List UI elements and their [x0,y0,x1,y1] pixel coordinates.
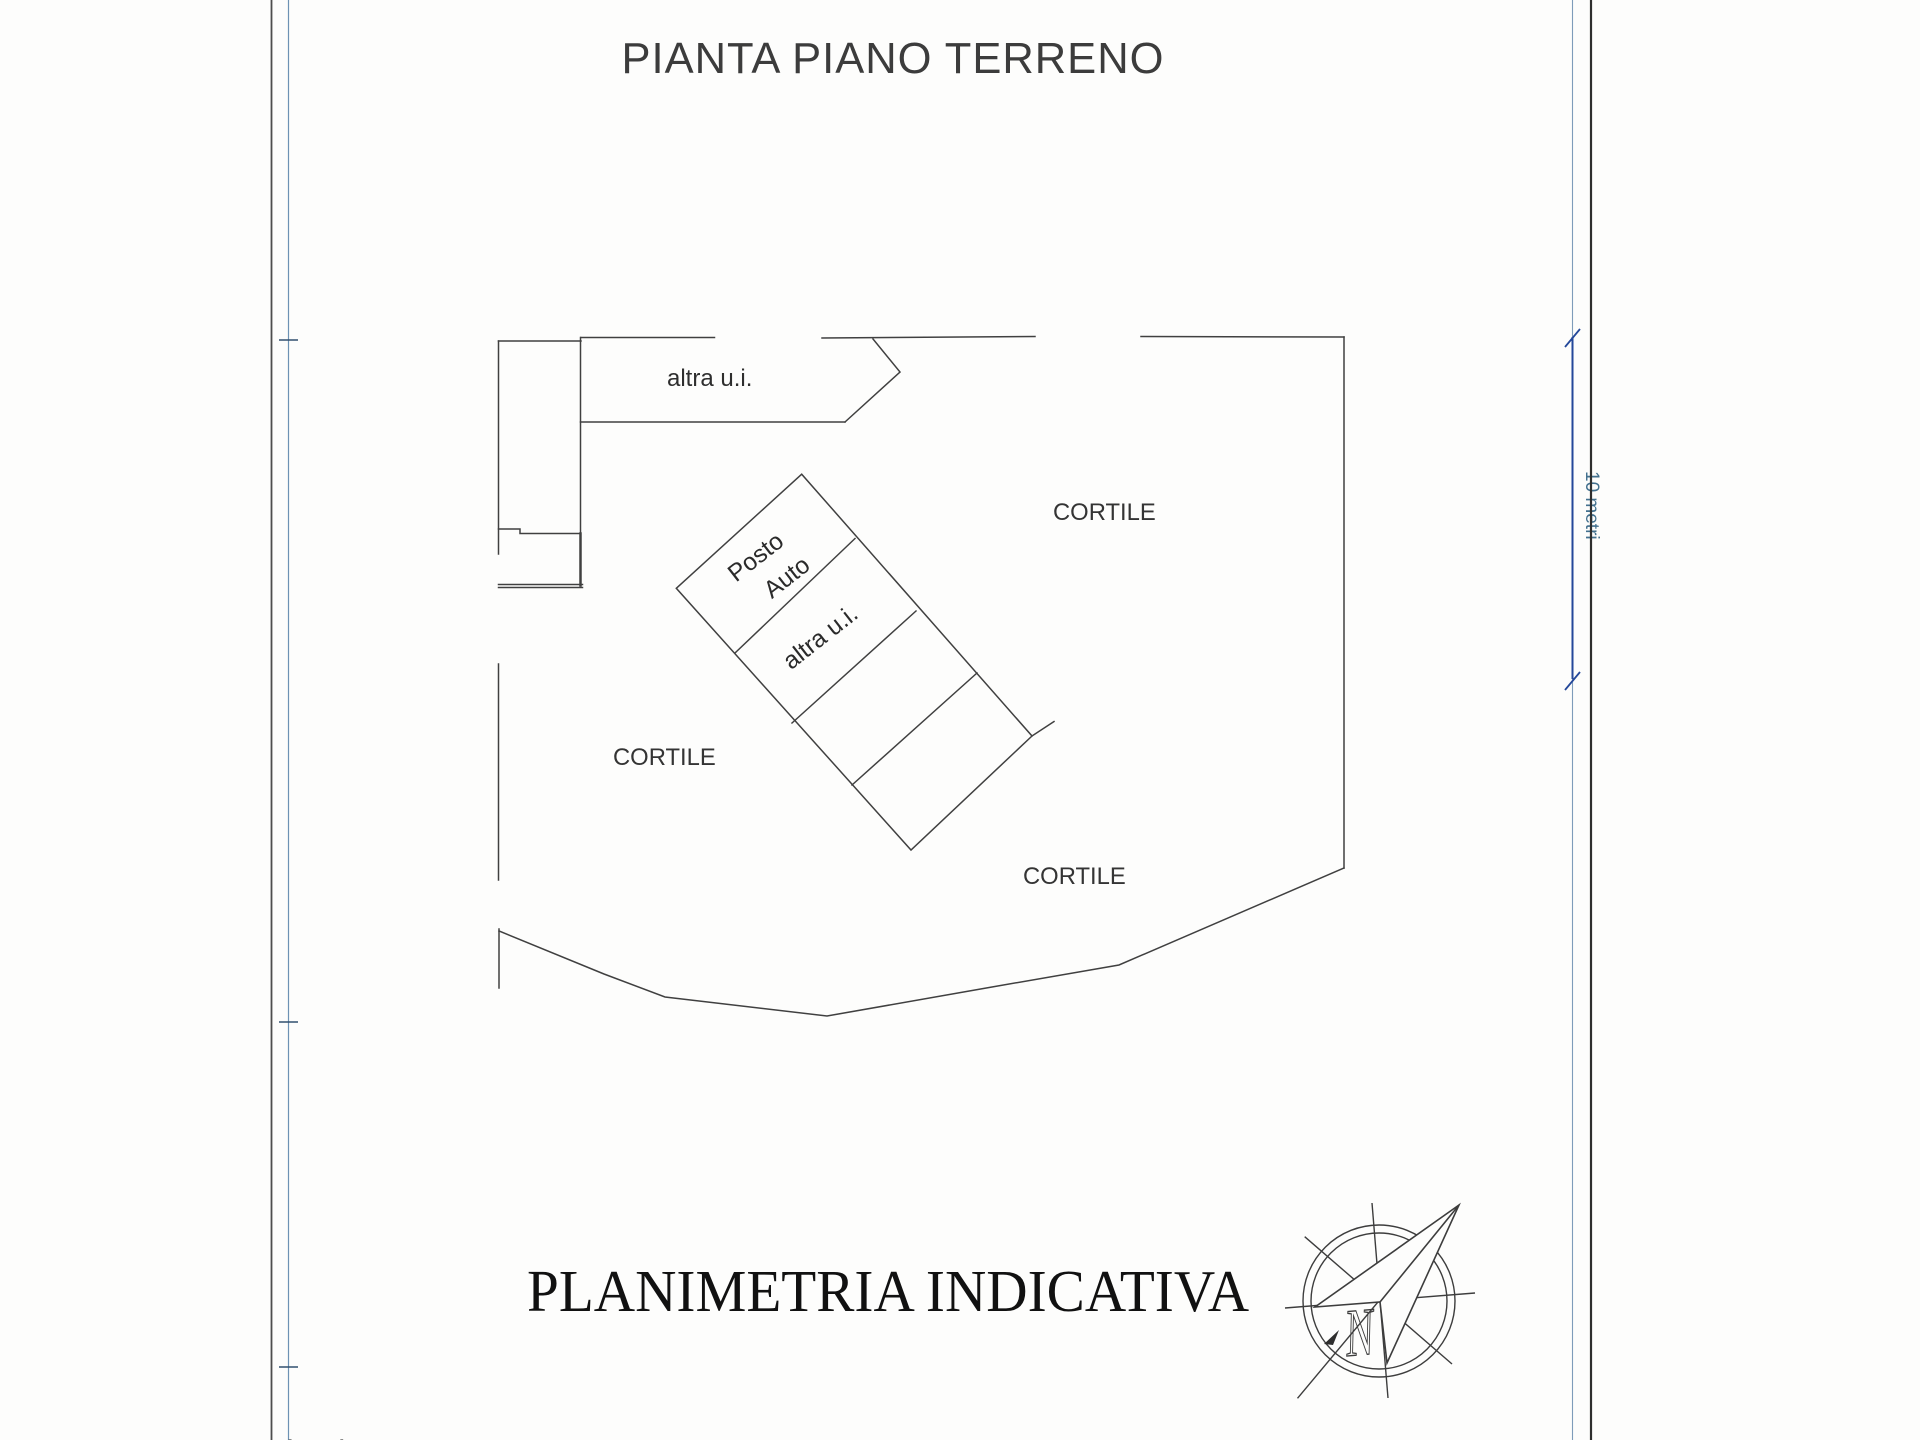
svg-text:PLANIMETRIA INDICATIVA: PLANIMETRIA INDICATIVA [527,1258,1249,1324]
svg-text:CORTILE: CORTILE [613,744,716,771]
svg-text:PIANTA PIANO TERRENO: PIANTA PIANO TERRENO [622,35,1165,83]
svg-text:CORTILE: CORTILE [1053,499,1156,526]
svg-text:Ultima planimetria in atti: Ultima planimetria in atti [275,1436,461,1440]
svg-text:altra u.i.: altra u.i. [667,365,752,392]
svg-text:CORTILE: CORTILE [1023,863,1126,890]
